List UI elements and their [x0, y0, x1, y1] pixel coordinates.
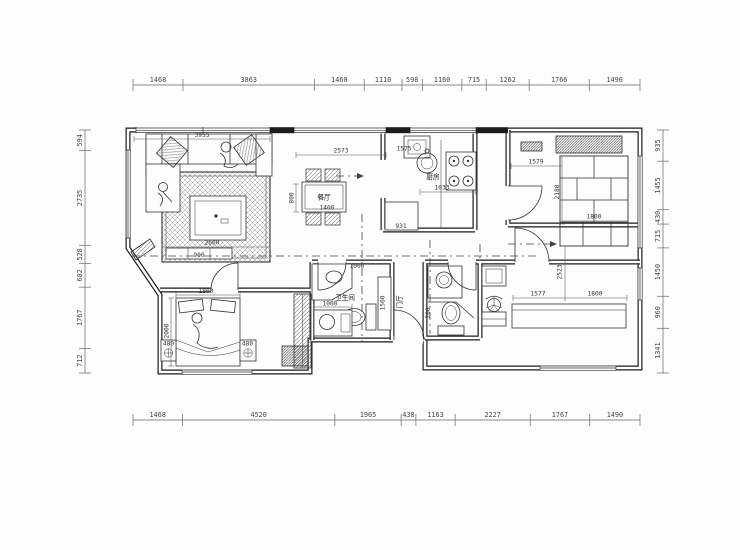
entry-door-arc	[394, 310, 424, 340]
dim-closet-shelf: 1800	[587, 214, 602, 221]
wall-pier	[270, 127, 294, 133]
dim-label: 4520	[251, 411, 267, 419]
dim-rug-width: 2600	[205, 240, 220, 247]
window-bedroom2-right	[638, 268, 643, 300]
dim-tv-cabinet: 900	[193, 252, 204, 259]
storage-bench	[482, 312, 506, 326]
dimension-chain-top: 14683863146011105981160715126217661490	[133, 76, 640, 91]
dim-label: 682	[76, 269, 84, 281]
dim-label: 1767	[552, 411, 568, 419]
shelf-unit	[560, 156, 628, 246]
washbasin-counter	[314, 310, 352, 336]
dim-label: 430	[654, 211, 662, 223]
dim-label: 1341	[654, 342, 662, 358]
dim-label: 1468	[150, 411, 166, 419]
dim-label: 1490	[606, 76, 622, 84]
dim-label: 1468	[150, 76, 166, 84]
hanging-rod	[556, 136, 622, 153]
dining-chair	[325, 213, 340, 225]
window-bedroom2-bottom	[540, 366, 616, 371]
dim-label: 1455	[654, 177, 662, 193]
dim-bath-top: 1000	[350, 263, 365, 270]
dim-label: 1262	[499, 76, 515, 84]
dining-chair	[325, 169, 340, 181]
dim-label: 715	[468, 76, 480, 84]
dimension-chain-bottom: 1468452019654381163222717671490	[133, 411, 640, 426]
room-label-dining: 餐厅	[317, 193, 331, 202]
corner-glazing	[131, 239, 155, 260]
dim-closet-depth: 2180	[554, 184, 561, 199]
bed	[176, 298, 240, 366]
dim-nightstand-right: 480	[242, 341, 253, 348]
room-label-kitchen: 厨房	[426, 172, 440, 181]
dim-label: 594	[76, 134, 84, 146]
desk	[482, 266, 506, 286]
bathroom2	[428, 266, 474, 335]
wall-pier	[386, 127, 410, 133]
window-living-left	[126, 150, 131, 238]
dim-label: 1163	[427, 411, 443, 419]
dim-label: 1965	[360, 411, 376, 419]
floor-plan-page: 14683863146011105981160715126217661490 1…	[0, 0, 740, 550]
wall-pier	[476, 127, 508, 133]
dim-label: 1767	[76, 310, 84, 326]
dim-label: 2735	[76, 190, 84, 206]
stove	[446, 152, 476, 190]
dim-label: 3863	[241, 76, 257, 84]
dim-label: 1160	[434, 76, 450, 84]
room-label-foyer: 门厅	[395, 295, 404, 309]
toilet-2	[438, 302, 464, 335]
dining-chair	[306, 169, 321, 181]
window-closet-right	[638, 156, 643, 248]
dim-label: 1766	[551, 76, 567, 84]
window-kitchen-top	[410, 127, 476, 134]
closet-door-arc	[508, 186, 542, 220]
floor-plan-canvas: 14683863146011105981160715126217661490 1…	[0, 0, 740, 550]
dim-balcony: 2573	[334, 148, 349, 155]
bedroom2	[482, 266, 626, 328]
dining-chair	[306, 213, 321, 225]
bedroom1-door-arc	[211, 263, 238, 290]
dim-label: 1450	[654, 264, 662, 280]
room-label-bath: 卫生间	[335, 293, 355, 302]
dim-label: 960	[654, 306, 662, 318]
bedroom2-door-arc	[515, 228, 549, 262]
dimension-chain-right: 935145543071514509601341	[654, 130, 669, 373]
dim-bed-length: 2000	[164, 323, 171, 338]
dim-bed2-depth: 2523	[557, 264, 564, 279]
dim-label: 528	[76, 248, 84, 260]
dim-bed2-w1: 1577	[531, 291, 546, 298]
dim-kitchen-run: 1033	[435, 185, 450, 192]
washer-cabinet	[282, 346, 308, 366]
dim-kitchen-top: 1575	[397, 146, 412, 153]
dim-label: 935	[654, 139, 662, 151]
dim-label: 712	[76, 355, 84, 367]
dim-label: 2227	[484, 411, 500, 419]
dim-bath-cabinet: 1560	[380, 295, 387, 310]
dim-nightstand-left: 480	[163, 341, 174, 348]
dim-dining-depth: 800	[289, 192, 296, 203]
dim-label: 1490	[607, 411, 623, 419]
dim-label: 438	[402, 411, 414, 419]
dim-living-width: 3955	[195, 132, 210, 139]
dim-bed2-w2: 1800	[588, 291, 603, 298]
dim-label: 1110	[375, 76, 391, 84]
closet-room	[521, 136, 628, 246]
bedroom1	[161, 294, 311, 368]
dim-closet-left: 1579	[529, 159, 544, 166]
dim-label: 598	[406, 76, 418, 84]
dim-label: 1460	[331, 76, 347, 84]
dim-bed-width: 1800	[199, 288, 214, 295]
bed-platform	[512, 304, 626, 328]
window-bedroom1-bottom	[182, 370, 252, 375]
dimension-chain-left: 59427355286821767712	[76, 130, 91, 373]
window-balcony-top	[294, 127, 386, 134]
shoe-box	[521, 142, 542, 151]
dim-dining-width: 1400	[320, 205, 335, 212]
dim-bath2-side: 200	[425, 307, 432, 318]
office-chair	[486, 296, 502, 312]
coffee-table	[190, 196, 246, 240]
dim-kitchen-duct: 931	[395, 223, 406, 230]
dim-label: 715	[654, 230, 662, 242]
